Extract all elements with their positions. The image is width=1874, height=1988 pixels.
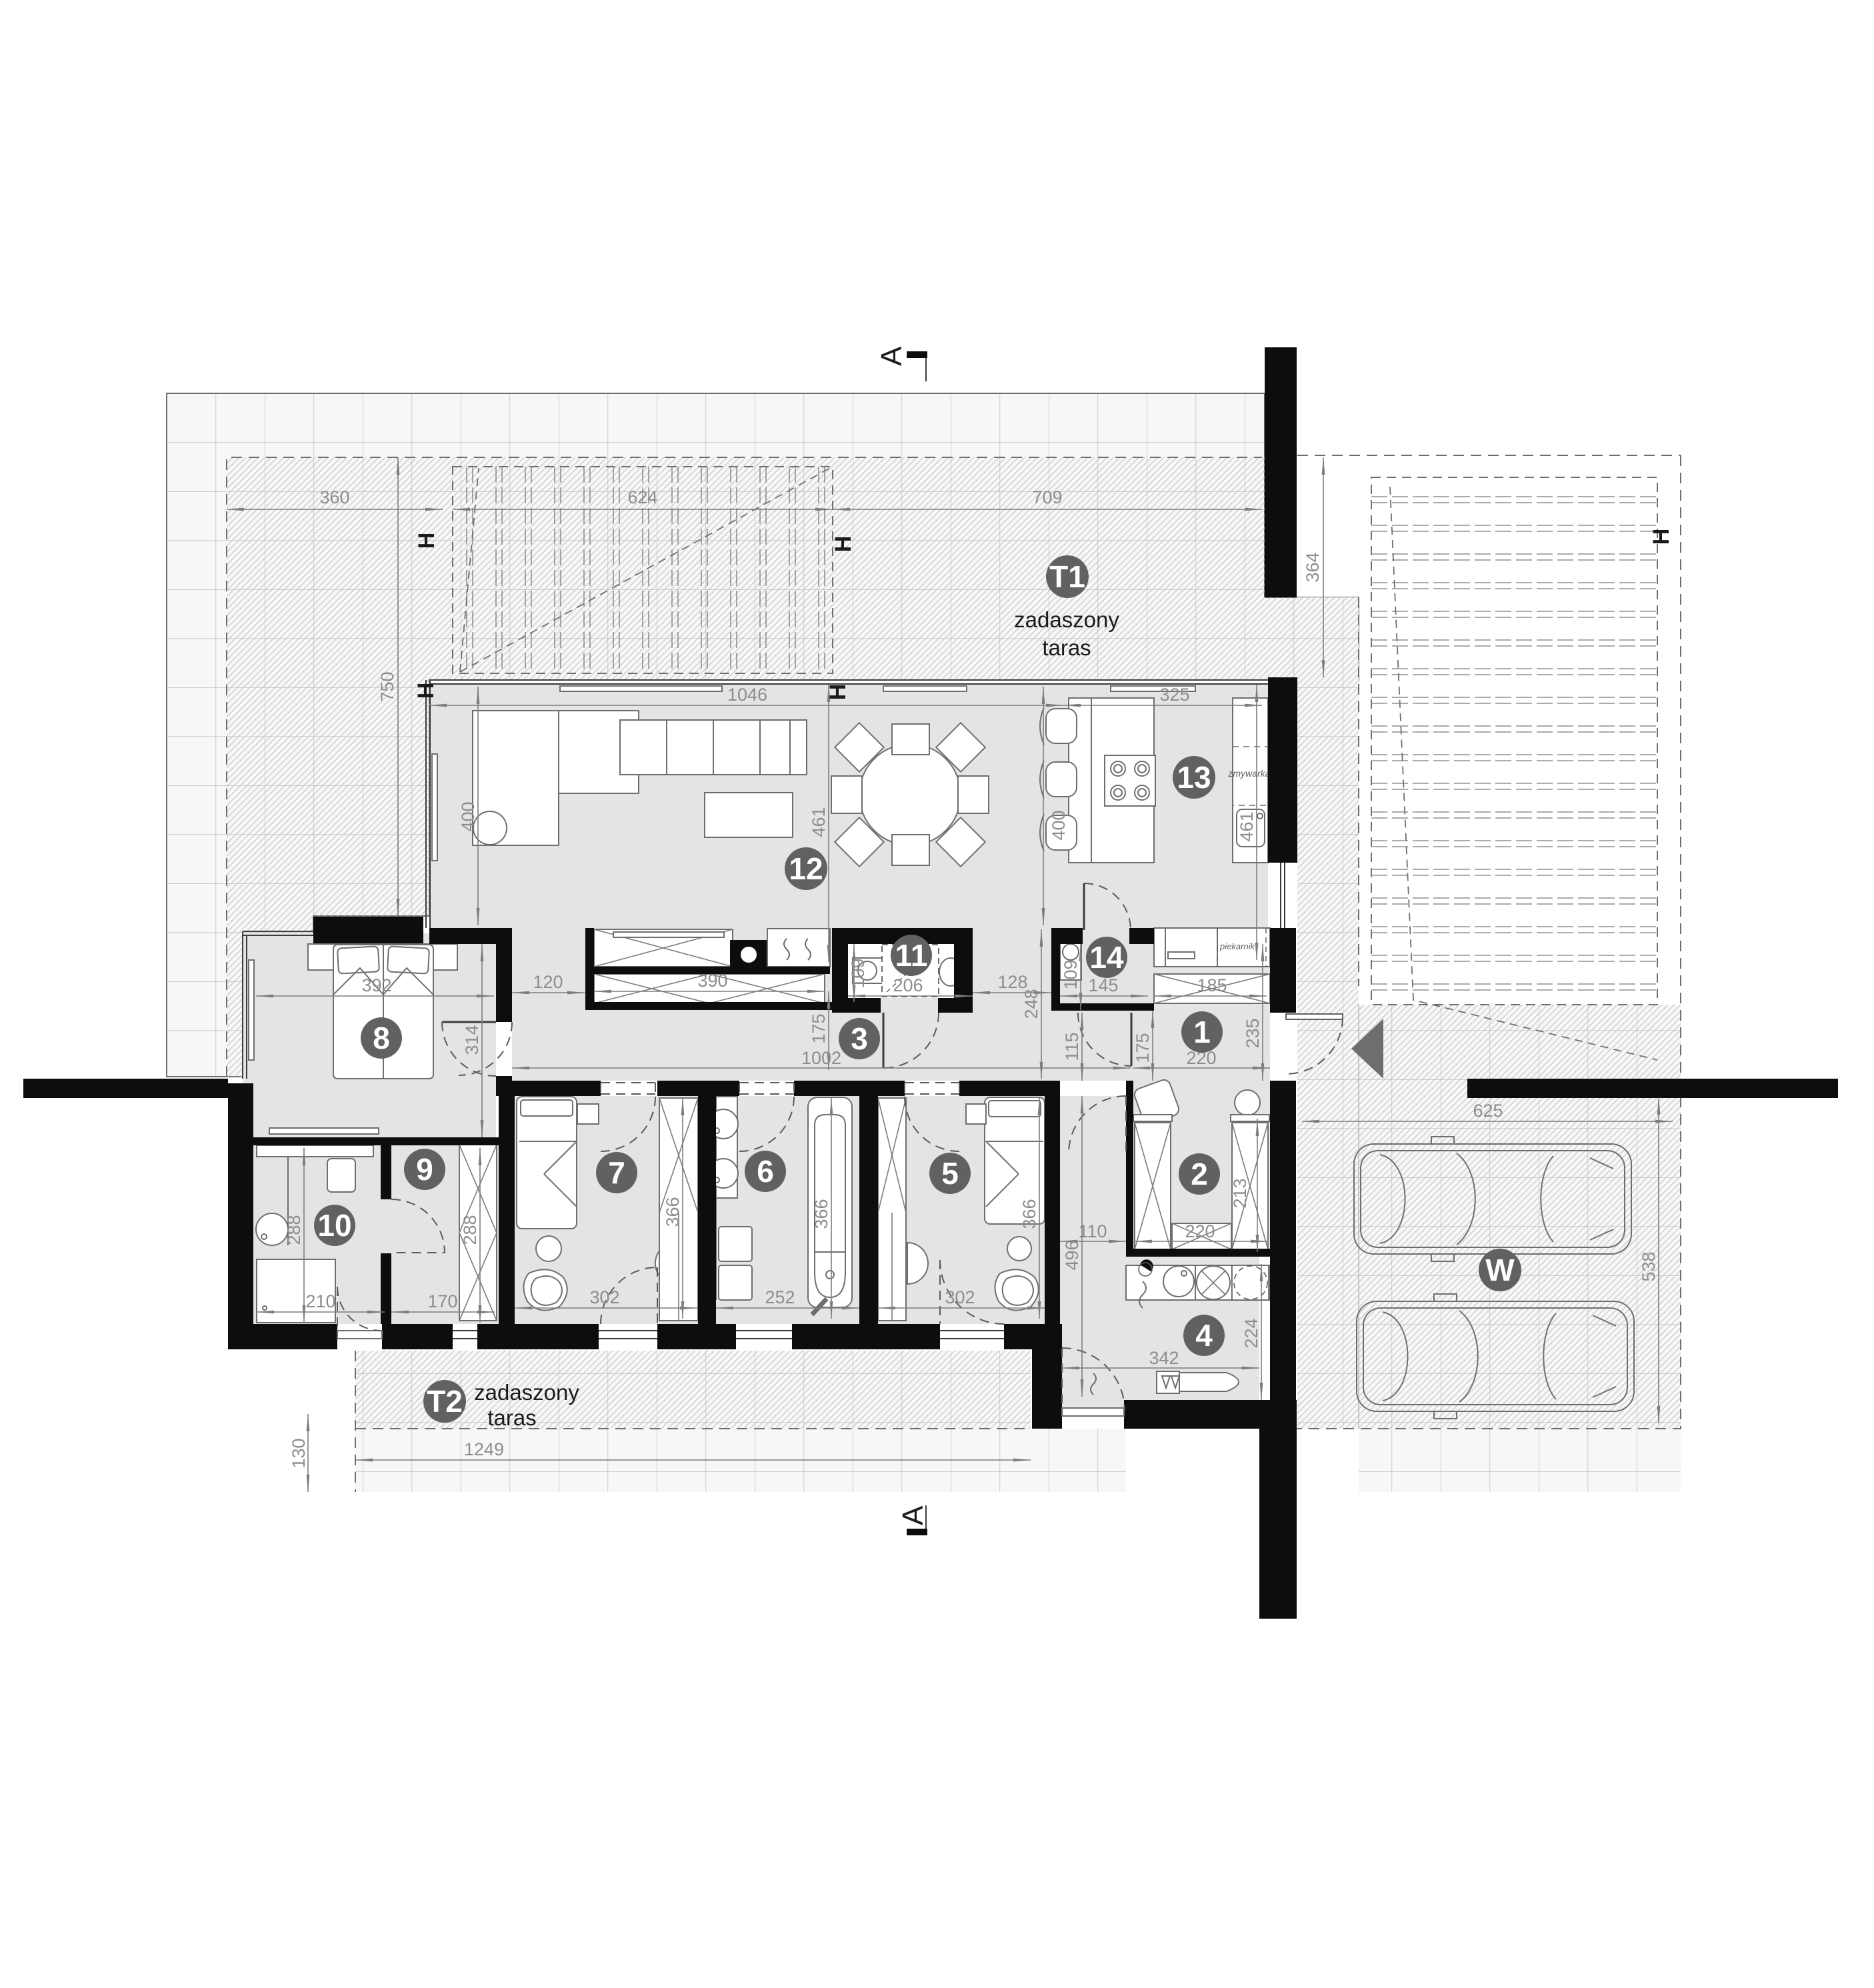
- svg-text:624: 624: [627, 487, 657, 507]
- svg-text:5: 5: [941, 1156, 959, 1191]
- svg-text:625: 625: [1473, 1101, 1503, 1121]
- svg-text:4: 4: [1195, 1318, 1213, 1353]
- svg-text:461: 461: [809, 807, 829, 837]
- svg-text:3: 3: [851, 1021, 868, 1056]
- svg-text:zadaszony: zadaszony: [1014, 607, 1119, 632]
- svg-text:496: 496: [1062, 1240, 1082, 1270]
- svg-text:145: 145: [1088, 975, 1118, 995]
- svg-text:8: 8: [373, 1021, 390, 1055]
- svg-text:400: 400: [458, 801, 478, 831]
- svg-text:248: 248: [1021, 989, 1041, 1019]
- svg-text:206: 206: [893, 975, 923, 995]
- svg-text:9: 9: [416, 1152, 433, 1187]
- svg-text:538: 538: [1639, 1251, 1659, 1281]
- svg-text:2: 2: [1191, 1157, 1208, 1191]
- svg-text:302: 302: [589, 1287, 619, 1307]
- svg-text:325: 325: [1159, 685, 1189, 705]
- svg-text:H: H: [413, 683, 439, 699]
- svg-text:1046: 1046: [727, 685, 767, 705]
- svg-text:360: 360: [319, 487, 349, 507]
- svg-text:1002: 1002: [801, 1048, 841, 1068]
- svg-text:175: 175: [809, 1013, 829, 1043]
- svg-text:110: 110: [1078, 1221, 1107, 1241]
- svg-text:400: 400: [1049, 810, 1069, 840]
- svg-text:130: 130: [289, 1438, 309, 1468]
- svg-text:288: 288: [460, 1215, 480, 1245]
- svg-text:461: 461: [1237, 811, 1257, 841]
- svg-text:T1: T1: [1049, 559, 1085, 594]
- svg-text:252: 252: [765, 1287, 795, 1307]
- svg-text:W: W: [1485, 1253, 1515, 1287]
- svg-text:288: 288: [284, 1215, 304, 1245]
- svg-text:zadaszony: zadaszony: [474, 1380, 579, 1405]
- svg-text:H: H: [414, 533, 439, 549]
- svg-text:709: 709: [1032, 487, 1062, 507]
- svg-text:11: 11: [895, 938, 928, 973]
- svg-text:7: 7: [608, 1155, 625, 1190]
- svg-text:H: H: [825, 684, 851, 701]
- svg-text:10: 10: [317, 1208, 351, 1243]
- svg-text:366: 366: [1019, 1199, 1039, 1229]
- svg-text:390: 390: [697, 971, 727, 991]
- svg-text:14: 14: [1089, 940, 1124, 975]
- svg-text:109: 109: [1061, 959, 1081, 989]
- svg-text:A: A: [897, 1505, 929, 1525]
- svg-text:750: 750: [377, 671, 397, 701]
- svg-text:120: 120: [533, 972, 563, 992]
- svg-text:109: 109: [848, 958, 868, 988]
- svg-text:1249: 1249: [464, 1439, 504, 1459]
- svg-text:170: 170: [427, 1291, 457, 1311]
- svg-text:T2: T2: [427, 1384, 463, 1419]
- svg-text:366: 366: [663, 1197, 683, 1227]
- svg-text:314: 314: [462, 1025, 482, 1055]
- svg-text:taras: taras: [487, 1405, 536, 1430]
- svg-text:taras: taras: [1042, 635, 1091, 660]
- svg-text:1: 1: [1193, 1015, 1211, 1049]
- svg-text:220: 220: [1185, 1221, 1215, 1241]
- svg-text:zmywarka: zmywarka: [1227, 768, 1270, 779]
- svg-text:366: 366: [811, 1199, 831, 1229]
- svg-text:115: 115: [1062, 1032, 1082, 1061]
- svg-text:piekarnik: piekarnik: [1219, 941, 1256, 951]
- svg-text:235: 235: [1243, 1018, 1263, 1048]
- svg-text:H: H: [1649, 529, 1674, 545]
- svg-text:302: 302: [945, 1287, 975, 1307]
- svg-text:342: 342: [1149, 1348, 1179, 1368]
- svg-text:175: 175: [1133, 1033, 1153, 1063]
- svg-text:213: 213: [1230, 1178, 1250, 1208]
- svg-text:392: 392: [361, 975, 391, 995]
- svg-text:210: 210: [305, 1291, 335, 1311]
- svg-text:13: 13: [1177, 760, 1211, 795]
- svg-text:H: H: [831, 536, 856, 553]
- svg-text:364: 364: [1303, 552, 1323, 582]
- svg-text:12: 12: [789, 851, 823, 886]
- svg-text:6: 6: [757, 1154, 774, 1189]
- svg-text:224: 224: [1241, 1318, 1261, 1348]
- svg-text:A: A: [875, 346, 908, 366]
- svg-text:185: 185: [1197, 975, 1227, 995]
